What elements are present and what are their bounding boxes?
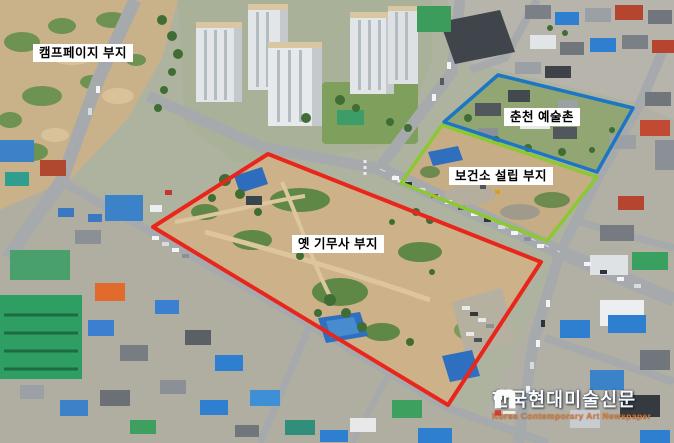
label-gimusa: 옛 기무사 부지 [292,235,384,253]
label-health-center: 보건소 설립 부지 [449,167,553,185]
aerial-photo-screenshot: 캠프페이지 부지 춘천 예술촌 보건소 설립 부지 옛 기무사 부지 한국현대미… [0,0,674,443]
label-art-village: 춘천 예술촌 [504,108,580,126]
newspaper-watermark: 한국현대미술신문 Korea Contemporary Art Newspape… [492,386,651,421]
label-camp-page: 캠프페이지 부지 [33,44,133,62]
newspaper-logo-icon [492,386,519,420]
gimusa-site-outline [153,154,541,405]
annotation-overlay [0,0,674,443]
